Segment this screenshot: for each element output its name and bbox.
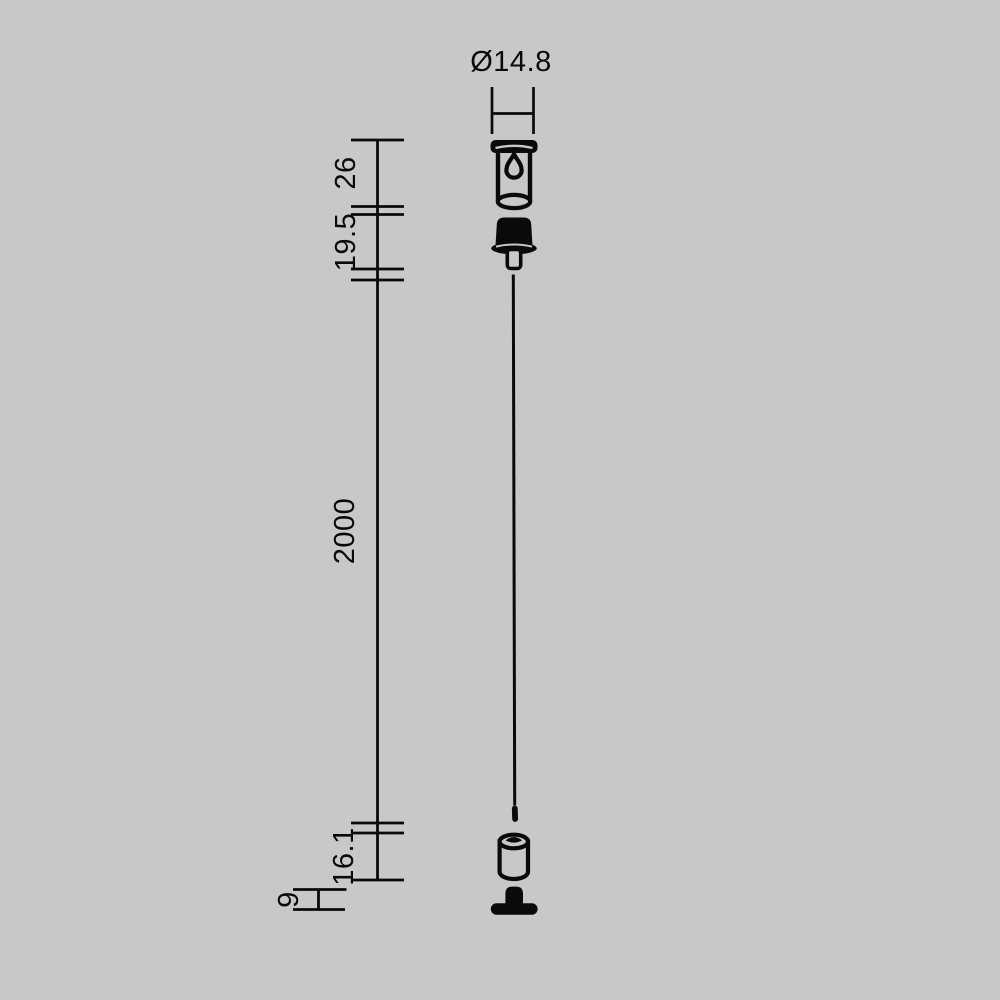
dimension-screw-height: 9 xyxy=(273,890,347,910)
drawing-canvas: Ø14.8 26 19.5 2000 16.1 9 xyxy=(0,0,1000,1000)
dimension-label-cable-length: 2000 xyxy=(329,498,361,565)
dimension-label-gripper-height: 19.5 xyxy=(330,213,362,271)
dimension-top-diameter: Ø14.8 xyxy=(470,46,552,134)
dimension-label-screw-height: 9 xyxy=(273,891,305,908)
dimension-chain-left: 26 19.5 2000 16.1 xyxy=(328,140,404,886)
screw-stem xyxy=(505,887,523,905)
screw-flange xyxy=(491,903,538,915)
cable-end-holder xyxy=(500,835,528,879)
dimension-label-top-diameter: Ø14.8 xyxy=(470,46,552,78)
suspension-cable xyxy=(513,275,515,820)
cup-bottom-rim xyxy=(498,195,530,208)
gripper-body xyxy=(496,218,533,246)
dimension-label-canopy-height: 26 xyxy=(330,156,362,189)
gripper-stem xyxy=(507,250,520,269)
suspension-kit-drawing: Ø14.8 26 19.5 2000 16.1 9 xyxy=(0,0,1000,1000)
dimension-label-end-holder-height: 16.1 xyxy=(328,827,360,885)
cable-line xyxy=(513,275,514,806)
cable-gripper xyxy=(491,218,537,269)
ceiling-fixing-cup xyxy=(491,140,538,208)
fixing-screw xyxy=(491,887,538,915)
